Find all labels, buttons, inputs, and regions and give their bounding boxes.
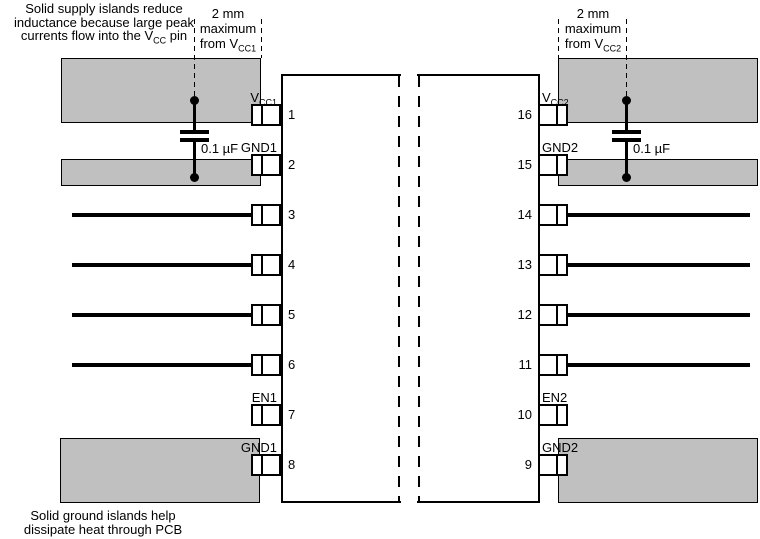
pin-label-en2: EN2: [542, 391, 652, 405]
signal-trace: [72, 313, 253, 317]
dimension-dashed-line: [558, 19, 559, 58]
pin-pad: [538, 304, 568, 326]
signal-trace: [566, 263, 750, 267]
ic-border-gap: [401, 498, 417, 506]
pad-divider: [556, 456, 558, 474]
dim-note-line: maximum: [560, 21, 626, 36]
dim-note-line: from VCC2: [560, 36, 626, 51]
pin-number: 11: [500, 356, 532, 374]
signal-trace: [566, 313, 750, 317]
pin-number: 13: [500, 256, 532, 274]
pin-number: 6: [288, 356, 322, 374]
pin-number: 16: [500, 106, 532, 124]
pin-pad: [251, 404, 281, 426]
supply-island-gnd1: [61, 159, 261, 186]
pin-pad: [538, 154, 568, 176]
pad-divider: [261, 256, 263, 274]
pin-number: 12: [500, 306, 532, 324]
dimension-dashed-line: [626, 19, 627, 99]
note-line: Solid supply islands reduce: [0, 2, 208, 16]
pin-number: 3: [288, 206, 322, 224]
pin-pad: [538, 354, 568, 376]
pin-label-gnd2: GND2: [542, 441, 652, 455]
pin-number: 1: [288, 106, 322, 124]
pcb-layout-diagram: 2 mm maximum from VCC1 2 mm maximum from…: [0, 0, 760, 539]
pin-label-vcc1: VCC1: [177, 91, 277, 105]
pad-divider: [556, 406, 558, 424]
pad-divider: [261, 406, 263, 424]
pin-pad: [538, 454, 568, 476]
pin-pad: [251, 254, 281, 276]
pin-pad: [251, 354, 281, 376]
note-line: Solid ground islands help: [8, 509, 198, 523]
pad-divider: [556, 356, 558, 374]
dim-note-line: 2 mm: [560, 6, 626, 21]
pin-number: 9: [500, 456, 532, 474]
signal-trace: [72, 213, 253, 217]
capacitor-plate: [180, 130, 209, 134]
pad-divider: [261, 456, 263, 474]
capacitor-plate: [612, 130, 641, 134]
pin-label-gnd1: GND1: [177, 441, 277, 455]
pin-number: 2: [288, 156, 322, 174]
isolation-barrier-line: [398, 76, 400, 501]
pin-number: 10: [500, 406, 532, 424]
note-line: currents flow into the VCC pin: [0, 29, 208, 43]
supply-island-gnd2: [558, 159, 758, 186]
isolation-barrier-line: [418, 76, 420, 501]
ic-package-outline: [281, 74, 540, 503]
pin-number: 8: [288, 456, 322, 474]
ic-border-gap: [401, 71, 417, 79]
pin-pad: [251, 204, 281, 226]
pin-label-gnd2: GND2: [542, 141, 652, 155]
note-supply-islands: Solid supply islands reduce inductance b…: [0, 2, 208, 43]
pin-label-en1: EN1: [177, 391, 277, 405]
pin-number: 15: [500, 156, 532, 174]
pin-pad: [251, 454, 281, 476]
junction-dot: [190, 173, 199, 182]
dimension-note-right: 2 mm maximum from VCC2: [560, 6, 626, 51]
pad-divider: [261, 306, 263, 324]
pin-pad: [538, 254, 568, 276]
note-line: inductance because large peak: [0, 16, 208, 30]
pad-divider: [261, 206, 263, 224]
pad-divider: [261, 106, 263, 124]
signal-trace: [72, 363, 253, 367]
signal-trace: [566, 213, 750, 217]
pad-divider: [556, 156, 558, 174]
pin-label-gnd1: GND1: [177, 141, 277, 155]
pin-pad: [251, 304, 281, 326]
pad-divider: [261, 356, 263, 374]
junction-dot: [622, 173, 631, 182]
signal-trace: [566, 363, 750, 367]
pin-pad: [538, 404, 568, 426]
pin-number: 4: [288, 256, 322, 274]
pad-divider: [556, 206, 558, 224]
pad-divider: [556, 306, 558, 324]
pad-divider: [556, 106, 558, 124]
signal-trace: [72, 263, 253, 267]
dimension-dashed-line: [261, 19, 262, 58]
pad-divider: [261, 156, 263, 174]
pin-number: 14: [500, 206, 532, 224]
pin-pad: [251, 154, 281, 176]
pin-pad: [538, 204, 568, 226]
pad-divider: [556, 256, 558, 274]
note-line: dissipate heat through PCB: [8, 523, 198, 537]
pin-number: 7: [288, 406, 322, 424]
pin-label-vcc2: VCC2: [542, 91, 652, 105]
pin-number: 5: [288, 306, 322, 324]
note-ground-islands: Solid ground islands help dissipate heat…: [8, 509, 198, 536]
